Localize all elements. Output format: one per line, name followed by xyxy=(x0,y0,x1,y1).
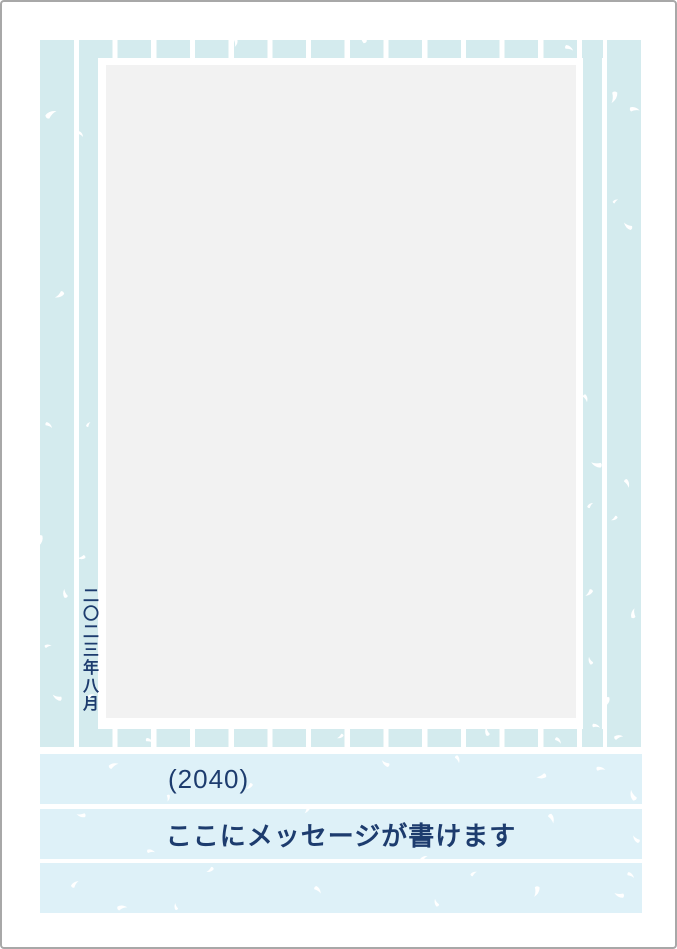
left-outer-stripe xyxy=(40,40,74,747)
empty-band xyxy=(40,863,642,913)
message-band[interactable]: ここにメッセージが書けます xyxy=(40,809,642,859)
message-text[interactable]: ここにメッセージが書けます xyxy=(166,816,516,853)
photo-placeholder[interactable] xyxy=(106,65,576,718)
top-dashed-border xyxy=(79,40,603,58)
right-outer-stripe xyxy=(607,40,641,747)
design-number-band: (2040) xyxy=(40,754,642,804)
postcard-template: 二〇二三年八月 (2040) ここにメッセージが書けます xyxy=(0,0,677,949)
bottom-dashed-border xyxy=(79,729,603,747)
right-inner-stripe xyxy=(583,40,602,747)
design-number: (2040) xyxy=(40,764,249,795)
date-vertical-text: 二〇二三年八月 xyxy=(78,587,99,729)
